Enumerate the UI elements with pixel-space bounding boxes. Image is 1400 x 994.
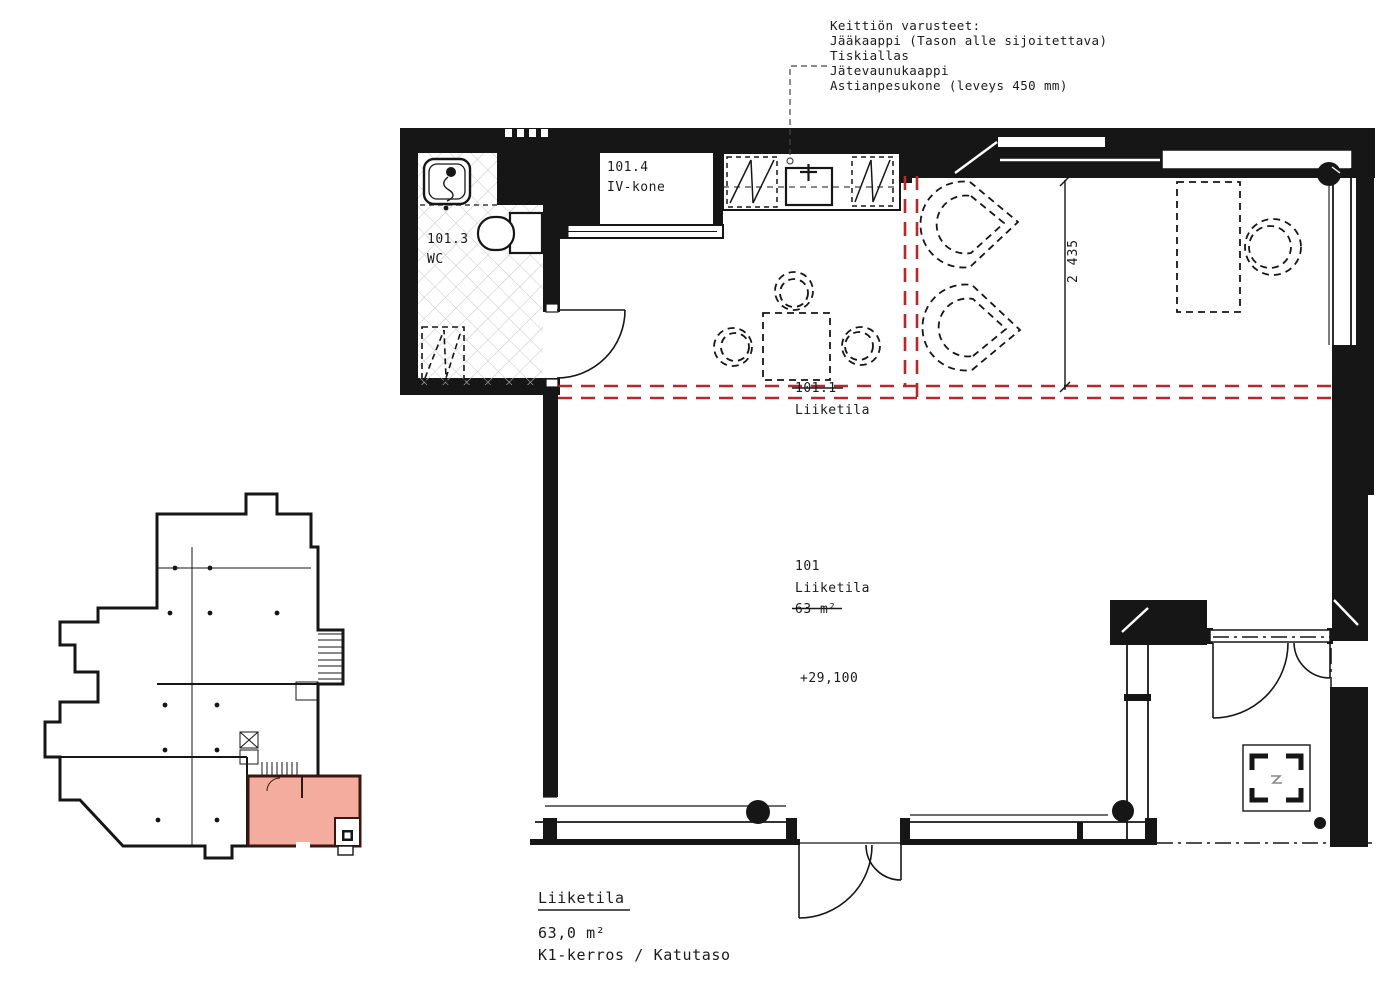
toilet bbox=[478, 213, 542, 253]
furniture bbox=[714, 182, 1301, 381]
desk-chair bbox=[1245, 219, 1301, 275]
room-number: 101 bbox=[795, 559, 820, 574]
kitchen-note: Keittiön varusteet: Jääkaappi (Tason all… bbox=[830, 18, 1107, 93]
column bbox=[1112, 800, 1134, 822]
dining-chair bbox=[775, 272, 813, 310]
wall-top-left-band bbox=[400, 128, 912, 153]
sink bbox=[424, 159, 470, 210]
footer-area: 63,0 m² bbox=[538, 924, 605, 942]
key-plan-unit-highlight bbox=[248, 776, 360, 855]
footer-title: Liiketila bbox=[538, 889, 625, 907]
room-name: IV-kone bbox=[607, 180, 665, 195]
wall-main-left bbox=[543, 390, 558, 797]
room-area-struck: 63 m² bbox=[795, 602, 837, 617]
level-mark: +29,100 bbox=[800, 671, 858, 686]
armchair bbox=[922, 285, 1020, 371]
kitchen-note-line: Jätevaunukaappi bbox=[830, 63, 949, 78]
dining-chair bbox=[714, 328, 752, 366]
room-label-liiketila-main: 101 Liiketila 63 m² +29,100 bbox=[792, 559, 870, 686]
wall-wc-right-upper bbox=[543, 205, 560, 312]
doors bbox=[546, 304, 1330, 918]
dining-table bbox=[763, 313, 830, 380]
footer-floor: K1-kerros / Katutaso bbox=[538, 946, 731, 964]
room-name: Liiketila bbox=[795, 581, 870, 596]
dimension-text: 2 435 bbox=[1066, 239, 1081, 283]
wall-wc-nook-chunk bbox=[497, 153, 560, 205]
columns bbox=[746, 162, 1341, 829]
window-sill-right bbox=[900, 839, 1157, 845]
kitchen-note-line: Tiskiallas bbox=[830, 48, 909, 63]
armchair bbox=[920, 182, 1018, 268]
wc-door bbox=[546, 304, 625, 387]
column bbox=[746, 800, 770, 824]
column bbox=[1314, 817, 1326, 829]
walls bbox=[400, 128, 1375, 847]
room-number: 101.3 bbox=[427, 232, 469, 247]
room-name: Liiketila bbox=[795, 403, 870, 418]
room-name: WC bbox=[427, 252, 444, 267]
column bbox=[1317, 162, 1341, 186]
dimension-2435 bbox=[1060, 176, 1070, 392]
iv-kone-window bbox=[560, 225, 723, 238]
kitchen-note-line: Jääkaappi (Tason alle sijoitettava) bbox=[830, 33, 1107, 48]
wall-right-outer-band bbox=[1356, 170, 1374, 495]
kitchen bbox=[723, 153, 900, 210]
kitchen-note-line: Keittiön varusteet: bbox=[830, 18, 981, 33]
window-mullion bbox=[1124, 694, 1151, 701]
key-plan bbox=[45, 494, 360, 858]
window-sill-left bbox=[530, 839, 800, 845]
room-label-iv-kone: 101.4 IV-kone bbox=[607, 160, 665, 195]
wall-left-wc bbox=[400, 128, 418, 395]
floor-plan-drawing: Keittiön varusteet: Jääkaappi (Tason all… bbox=[0, 0, 1400, 994]
windows bbox=[535, 168, 1351, 840]
wall-vestibule-chunk bbox=[1110, 600, 1207, 645]
mat-well bbox=[1243, 745, 1310, 811]
entrance-door bbox=[797, 843, 905, 918]
room-number: 101.4 bbox=[607, 160, 649, 175]
dining-chair bbox=[842, 327, 880, 365]
desk bbox=[1177, 182, 1240, 312]
red-zone-boundary bbox=[558, 176, 1332, 398]
kitchen-note-line: Astianpesukone (leveys 450 mm) bbox=[830, 78, 1068, 93]
vestibule-door bbox=[1213, 643, 1330, 718]
wall-right-lower bbox=[1330, 687, 1368, 847]
floor-plan-page: Keittiön varusteet: Jääkaappi (Tason all… bbox=[0, 0, 1400, 994]
footer-title-block: Liiketila 63,0 m² K1-kerros / Katutaso bbox=[538, 889, 731, 964]
